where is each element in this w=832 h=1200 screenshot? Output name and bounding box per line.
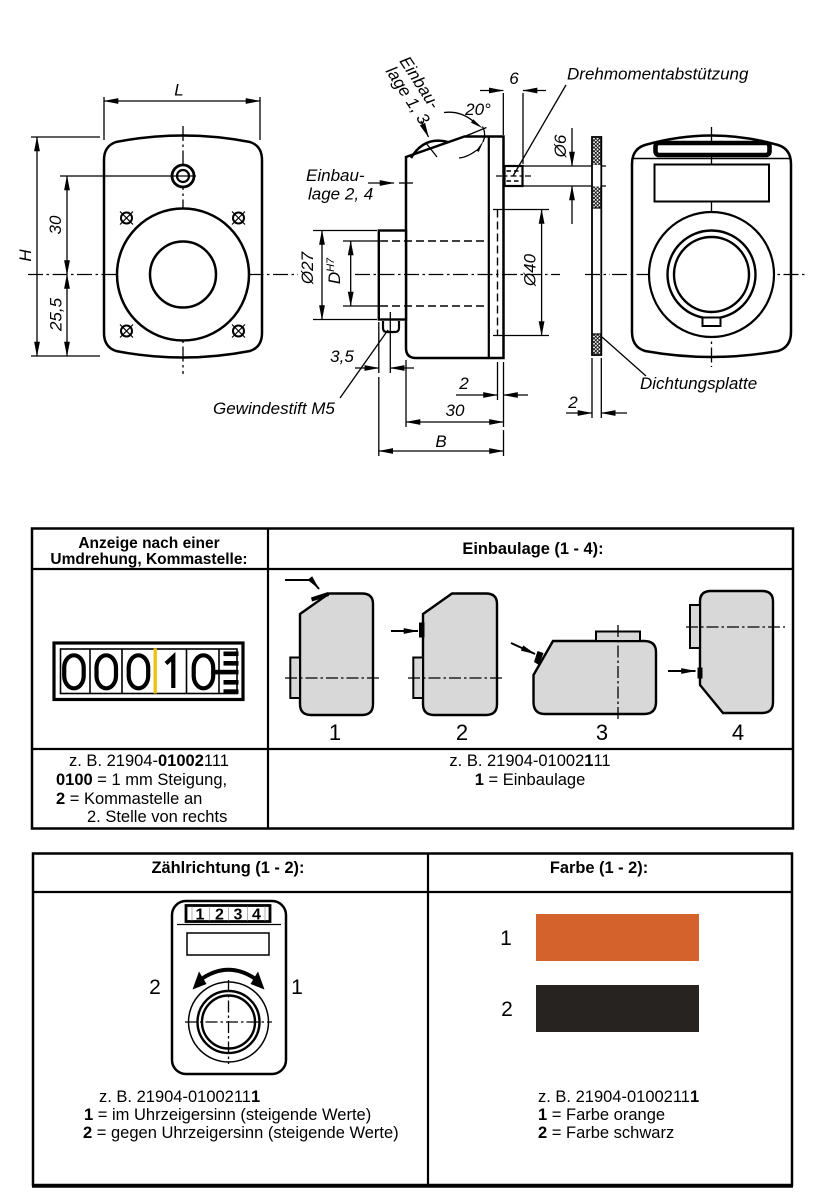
svg-text:Ø6: Ø6 [551, 134, 570, 158]
svg-text:Einbaulage (1 - 4):: Einbaulage (1 - 4): [462, 540, 603, 558]
svg-text:L: L [174, 81, 183, 100]
svg-text:z. B. 21904-01002111: z. B. 21904-01002111 [69, 752, 229, 770]
svg-text:H: H [16, 249, 35, 262]
svg-text:3: 3 [596, 720, 608, 745]
svg-text:2 = Farbe schwarz: 2 = Farbe schwarz [538, 1124, 674, 1142]
svg-text:2: 2 [149, 976, 161, 999]
svg-text:1: 1 [291, 976, 303, 999]
svg-text:2: 2 [456, 720, 468, 745]
svg-text:lage 2, 4: lage 2, 4 [308, 185, 373, 204]
svg-text:2: 2 [458, 374, 469, 393]
svg-text:1 = Farbe orange: 1 = Farbe orange [538, 1106, 665, 1124]
svg-text:30: 30 [46, 215, 65, 234]
svg-text:2: 2 [215, 907, 224, 924]
svg-text:2: 2 [567, 393, 578, 412]
svg-text:Anzeige nach einer: Anzeige nach einer [78, 535, 219, 552]
svg-text:1: 1 [329, 720, 341, 745]
svg-text:Dichtungsplatte: Dichtungsplatte [640, 374, 757, 393]
svg-text:25,5: 25,5 [47, 297, 66, 332]
svg-text:z. B. 21904-01002111: z. B. 21904-01002111 [99, 1088, 260, 1106]
svg-text:6: 6 [509, 69, 519, 88]
svg-text:z. B. 21904-01002111: z. B. 21904-01002111 [449, 752, 610, 770]
svg-text:0100 = 1 mm Steigung,: 0100 = 1 mm Steigung, [56, 771, 227, 789]
svg-text:Ø27: Ø27 [298, 251, 317, 285]
svg-text:Drehmomentabstützung: Drehmomentabstützung [567, 65, 749, 84]
svg-text:B: B [435, 432, 446, 451]
svg-text:1: 1 [196, 907, 205, 924]
svg-text:2. Stelle von rechts: 2. Stelle von rechts [87, 808, 227, 826]
svg-text:z. B. 21904-01002111: z. B. 21904-01002111 [538, 1088, 699, 1106]
svg-text:Farbe (1 - 2):: Farbe (1 - 2): [550, 859, 648, 877]
svg-text:Gewindestift M5: Gewindestift M5 [213, 399, 335, 418]
svg-text:Ø40: Ø40 [521, 253, 540, 287]
svg-text:4: 4 [252, 907, 261, 924]
svg-text:Zählrichtung (1 - 2):: Zählrichtung (1 - 2): [152, 859, 305, 877]
svg-text:4: 4 [732, 720, 744, 745]
svg-text:2 = Kommastelle an: 2 = Kommastelle an [56, 790, 202, 808]
svg-text:Umdrehung, Kommastelle:: Umdrehung, Kommastelle: [50, 551, 247, 568]
svg-text:3: 3 [234, 907, 243, 924]
svg-text:1 = Einbaulage: 1 = Einbaulage [475, 771, 586, 789]
svg-text:1: 1 [500, 927, 512, 950]
svg-text:1 = im Uhrzeigersinn (steigend: 1 = im Uhrzeigersinn (steigende Werte) [84, 1106, 371, 1124]
svg-text:3,5: 3,5 [330, 347, 354, 366]
svg-text:2: 2 [501, 998, 513, 1021]
svg-text:20°: 20° [464, 100, 491, 119]
svg-text:2 = gegen Uhrzeigersinn (steig: 2 = gegen Uhrzeigersinn (steigende Werte… [83, 1124, 399, 1142]
svg-text:Einbau-: Einbau- [306, 166, 365, 185]
svg-text:30: 30 [446, 401, 465, 420]
svg-text:DH7: DH7 [325, 257, 344, 284]
